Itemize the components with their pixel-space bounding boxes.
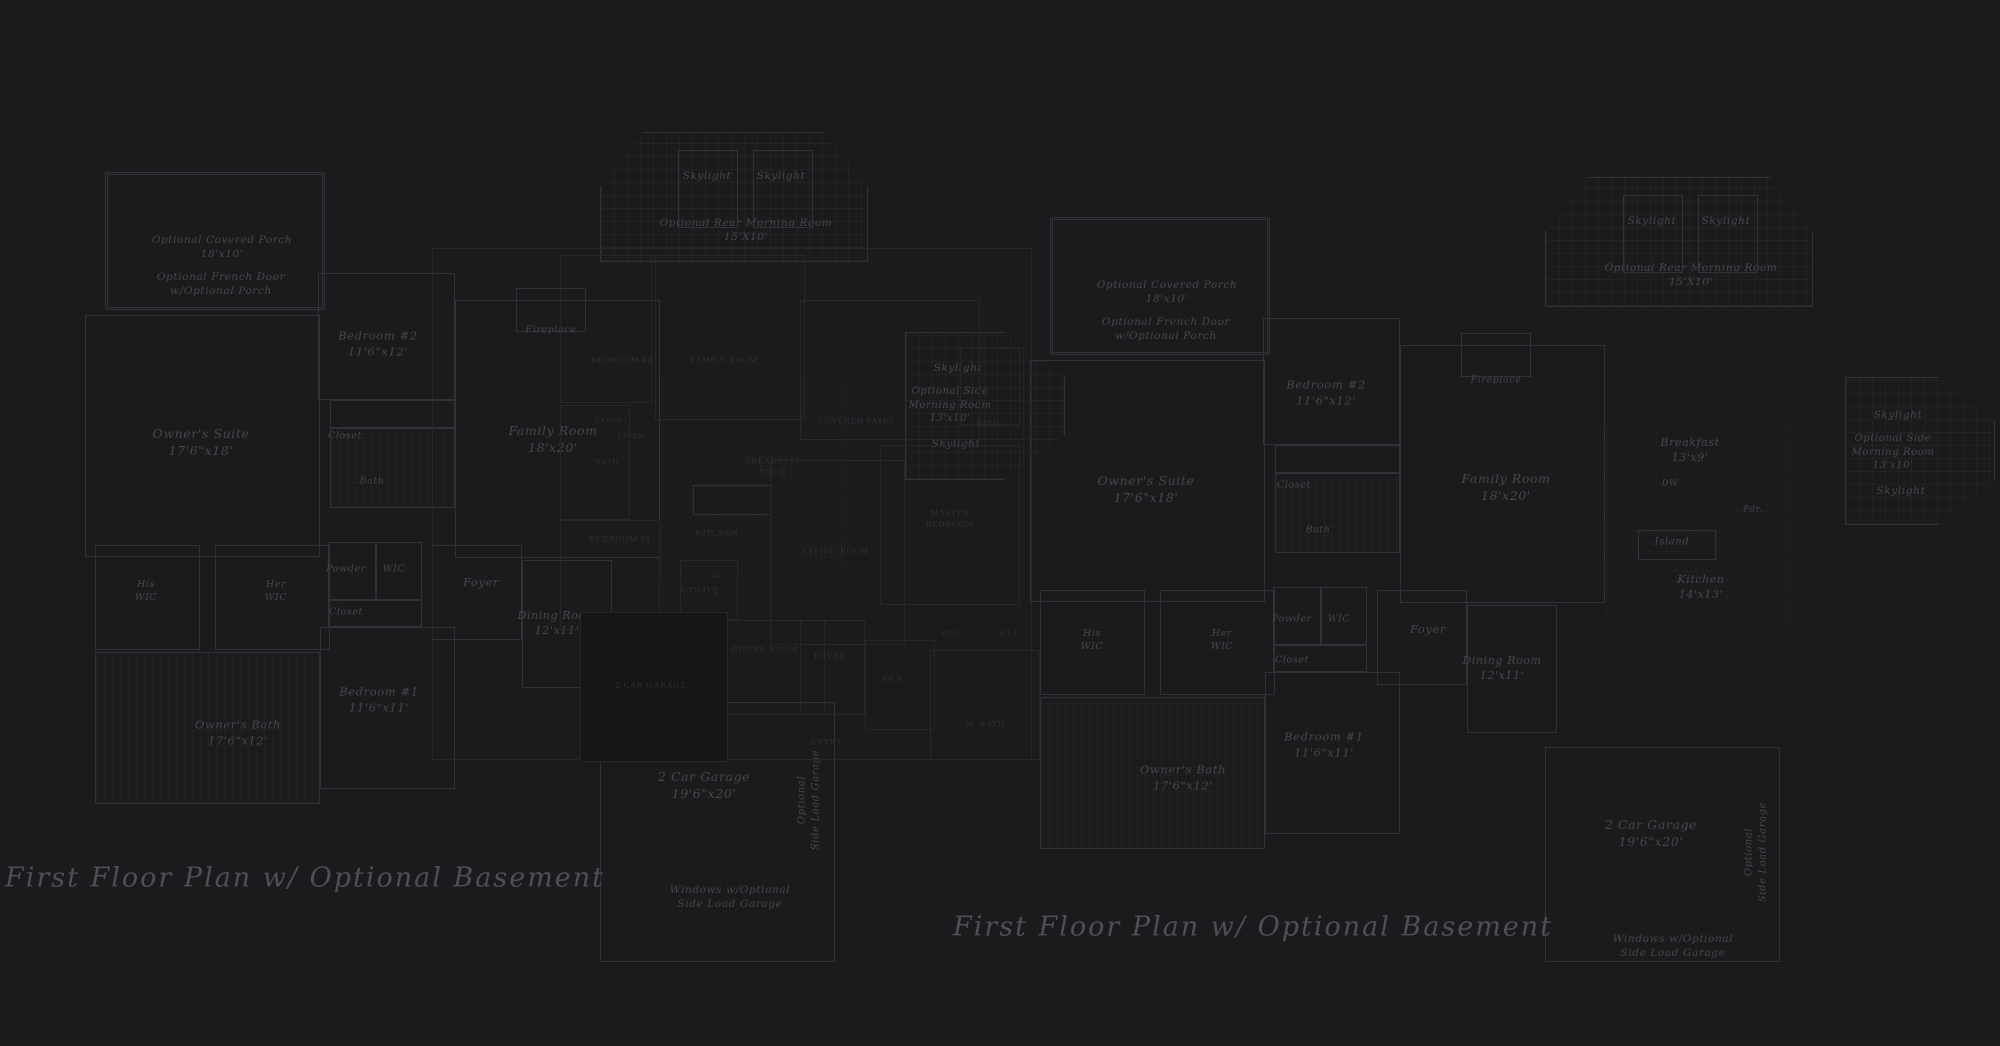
right-dining-room bbox=[1467, 605, 1557, 733]
plan-title-right: First Floor Plan w/ Optional Basement bbox=[953, 912, 1553, 943]
floorplan-canvas: Optional Covered Porch 18'x10'Optional F… bbox=[0, 0, 2000, 1046]
right-skylight-1 bbox=[1623, 195, 1683, 273]
right-covered-porch bbox=[1050, 217, 1270, 355]
right-family-room bbox=[1400, 345, 1605, 603]
right-powder bbox=[1273, 587, 1321, 645]
right-her-wic bbox=[1160, 590, 1275, 695]
right-bedroom-1 bbox=[1265, 672, 1400, 834]
right-owners-suite bbox=[1030, 360, 1265, 602]
right-skylight-2 bbox=[1698, 195, 1758, 273]
right-side-morning-room bbox=[1845, 377, 1995, 525]
right-island bbox=[1638, 530, 1716, 560]
right-garage bbox=[1545, 747, 1780, 962]
right-bedroom-2 bbox=[1263, 318, 1400, 445]
right-foyer bbox=[1377, 590, 1467, 685]
plan-title-left: First Floor Plan w/ Optional Basement bbox=[5, 863, 605, 894]
right-wic bbox=[1321, 587, 1367, 645]
right-closet-1 bbox=[1275, 445, 1400, 473]
right-kitchen-zone bbox=[1605, 423, 1790, 623]
right-closet-2 bbox=[1273, 645, 1367, 672]
right-his-wic bbox=[1040, 590, 1145, 695]
right-owners-bath bbox=[1040, 697, 1265, 849]
right-bath bbox=[1275, 473, 1400, 553]
